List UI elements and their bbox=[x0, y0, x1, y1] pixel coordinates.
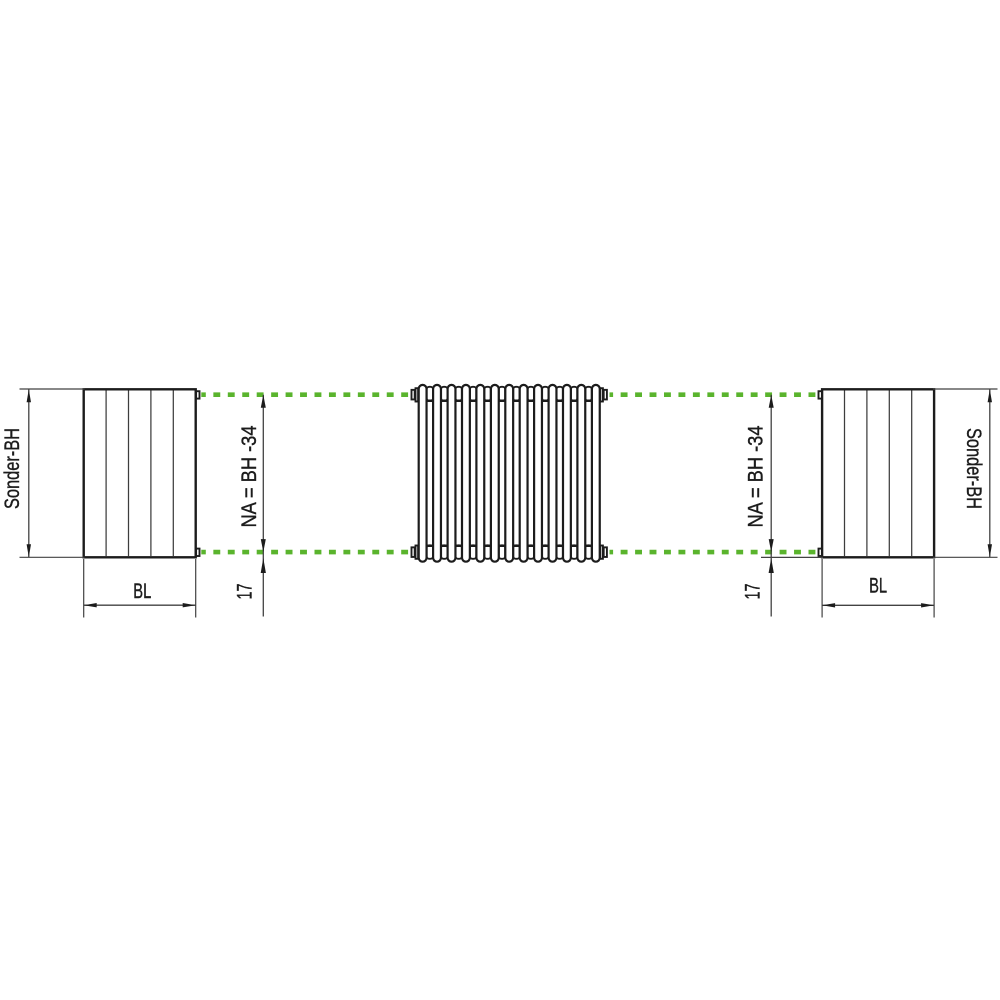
svg-text:17: 17 bbox=[740, 584, 764, 600]
svg-text:Sonder-BH: Sonder-BH bbox=[962, 428, 986, 509]
svg-text:Sonder-BH: Sonder-BH bbox=[0, 428, 24, 509]
svg-text:NA = BH -34: NA = BH -34 bbox=[743, 425, 767, 527]
svg-text:BL: BL bbox=[133, 579, 151, 603]
svg-text:BL: BL bbox=[869, 574, 887, 598]
svg-text:NA = BH -34: NA = BH -34 bbox=[237, 425, 261, 527]
svg-text:17: 17 bbox=[233, 584, 257, 600]
